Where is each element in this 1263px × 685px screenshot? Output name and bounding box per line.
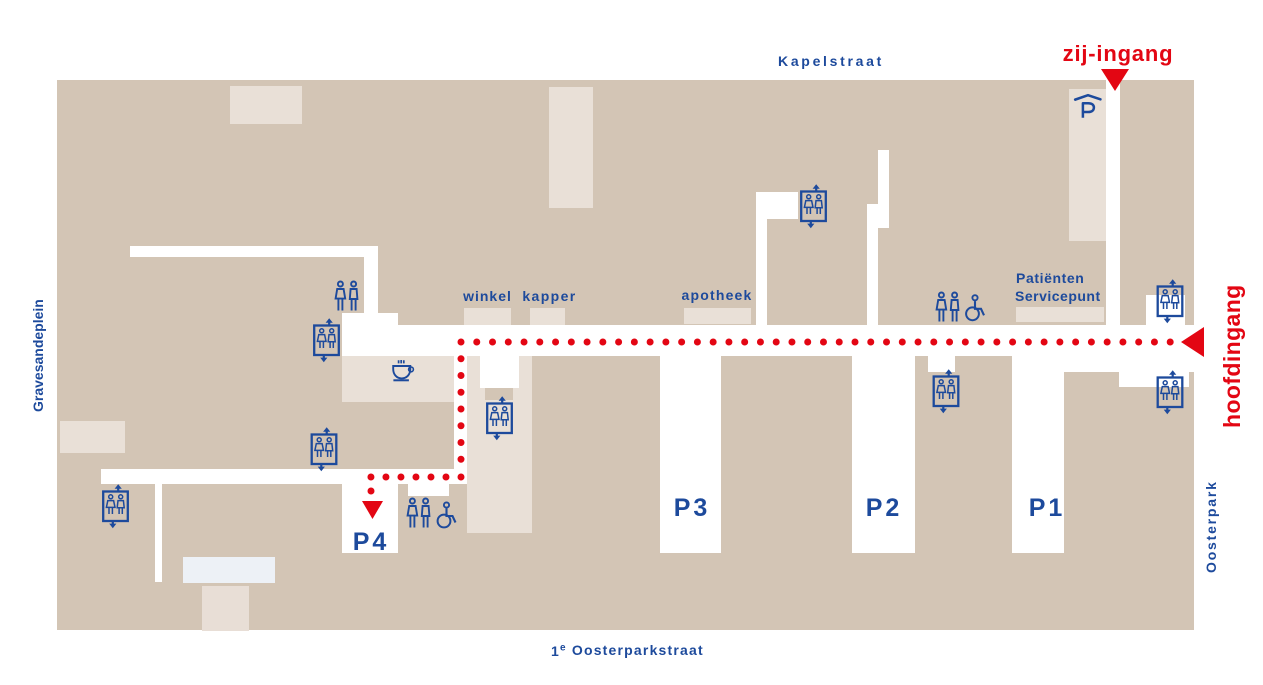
svg-text:Servicepunt: Servicepunt — [1015, 288, 1101, 304]
svg-text:P1: P1 — [1029, 494, 1066, 522]
svg-text:winkel: winkel — [462, 288, 512, 304]
svg-text:P4: P4 — [353, 528, 390, 556]
svg-text:kapper: kapper — [522, 288, 576, 304]
svg-text:1e Oosterparkstraat: 1e Oosterparkstraat — [551, 642, 704, 659]
svg-text:Oosterpark: Oosterpark — [1203, 480, 1219, 573]
svg-text:Patiënten: Patiënten — [1016, 270, 1084, 286]
svg-text:zij-ingang: zij-ingang — [1063, 41, 1174, 66]
svg-text:apotheek: apotheek — [681, 287, 752, 303]
svg-text:P3: P3 — [674, 494, 711, 522]
svg-text:Gravesandeplein: Gravesandeplein — [30, 299, 46, 412]
svg-text:Kapelstraat: Kapelstraat — [778, 53, 884, 69]
svg-text:hoofdingang: hoofdingang — [1219, 284, 1245, 428]
svg-text:P2: P2 — [866, 494, 903, 522]
